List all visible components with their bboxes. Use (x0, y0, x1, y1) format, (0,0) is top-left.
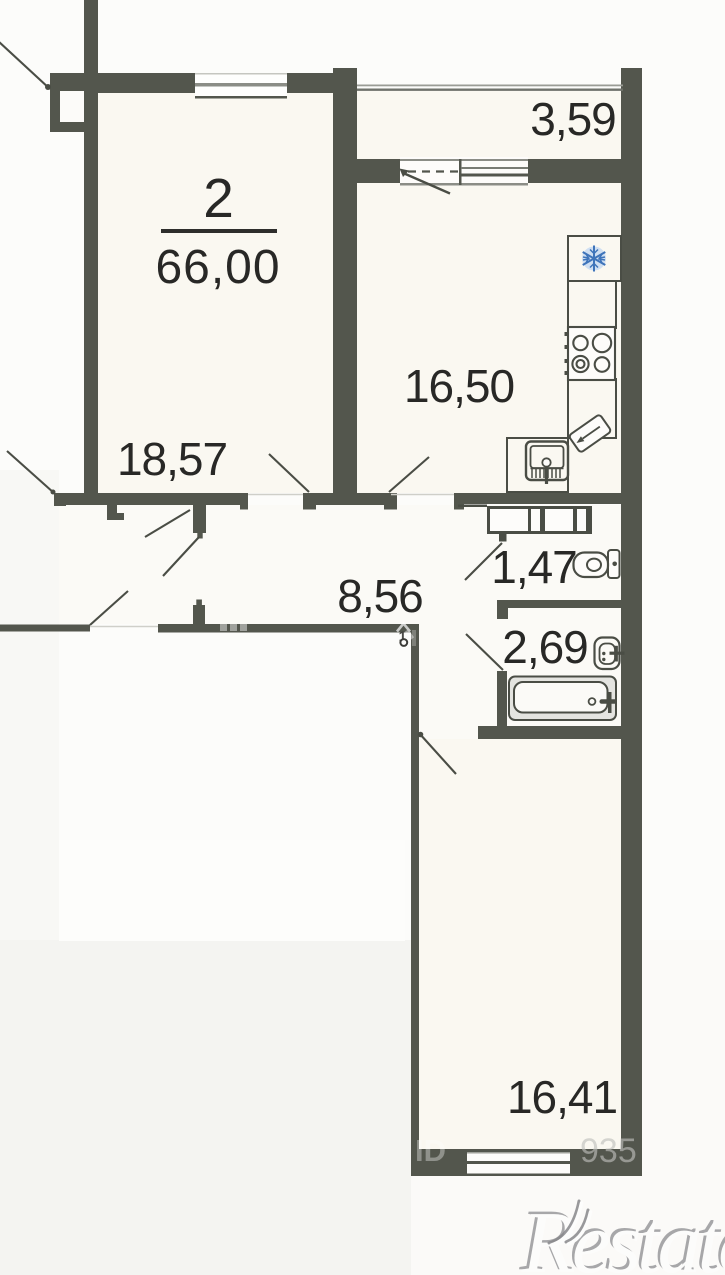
svg-text:3,59: 3,59 (530, 93, 616, 145)
svg-text:Restate: Restate (521, 1195, 725, 1275)
svg-text:16,41: 16,41 (507, 1071, 617, 1123)
svg-text:2: 2 (203, 167, 233, 229)
svg-text:66,00: 66,00 (155, 241, 280, 294)
svg-text:ID: ID (415, 1133, 446, 1168)
svg-text:1,47: 1,47 (491, 541, 577, 593)
svg-text:16,50: 16,50 (404, 360, 514, 412)
svg-text:8,56: 8,56 (337, 570, 423, 622)
svg-text:2,69: 2,69 (502, 621, 588, 673)
svg-text:18,57: 18,57 (117, 433, 227, 485)
